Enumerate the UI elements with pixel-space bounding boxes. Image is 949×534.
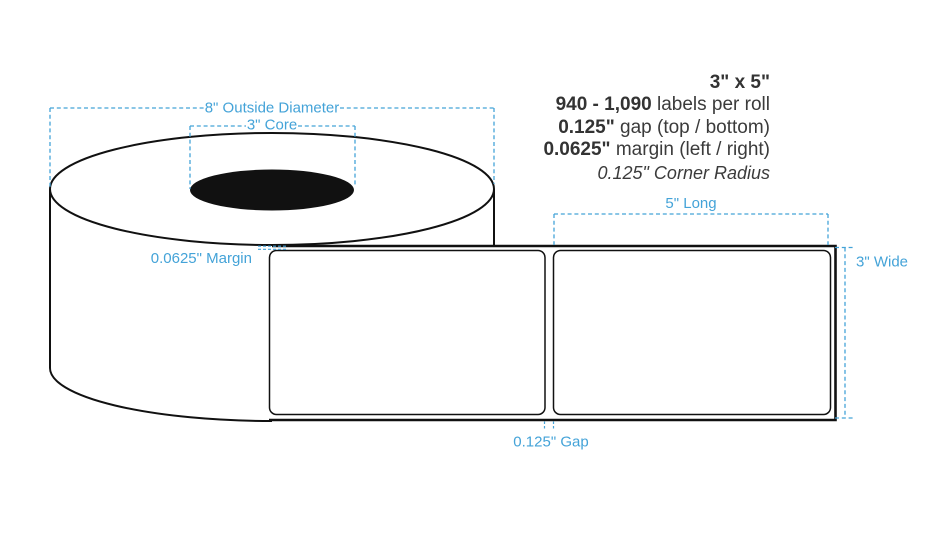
spec-corner-radius-value: 0.125" Corner Radius — [598, 163, 771, 183]
spec-summary: 3" x 5" 940 - 1,090 labels per roll 0.12… — [543, 72, 770, 184]
margin-label: 0.0625" Margin — [151, 250, 252, 267]
label-roll-spec-diagram: 8" Outside Diameter 3" Core 0.0625" Marg… — [0, 0, 949, 534]
spec-margin: 0.0625" margin (left / right) — [543, 139, 770, 161]
spec-size-value: 3" x 5" — [710, 72, 770, 93]
outside-diameter-label: 8" Outside Diameter — [205, 100, 340, 117]
spec-size: 3" x 5" — [543, 72, 770, 94]
dim-length — [554, 214, 828, 245]
label-1 — [270, 251, 546, 415]
spec-quantity-value: 940 - 1,090 — [556, 94, 652, 115]
dim-width — [835, 248, 853, 419]
length-label: 5" Long — [665, 195, 716, 212]
roll-diagram-canvas: 8" Outside Diameter 3" Core 0.0625" Marg… — [0, 0, 949, 534]
spec-margin-text: margin (left / right) — [611, 139, 770, 160]
roll-core-hole — [190, 170, 354, 211]
spec-margin-value: 0.0625" — [543, 139, 610, 160]
spec-corner-radius: 0.125" Corner Radius — [543, 162, 770, 184]
dim-gap — [545, 422, 554, 431]
spec-gap-value: 0.125" — [558, 117, 615, 138]
width-label: 3" Wide — [856, 254, 908, 271]
core-label: 3" Core — [247, 117, 297, 134]
label-2 — [554, 251, 831, 415]
spec-quantity: 940 - 1,090 labels per roll — [543, 94, 770, 116]
spec-quantity-text: labels per roll — [652, 94, 770, 115]
spec-gap: 0.125" gap (top / bottom) — [543, 117, 770, 139]
gap-label: 0.125" Gap — [513, 434, 588, 451]
spec-gap-text: gap (top / bottom) — [615, 117, 770, 138]
